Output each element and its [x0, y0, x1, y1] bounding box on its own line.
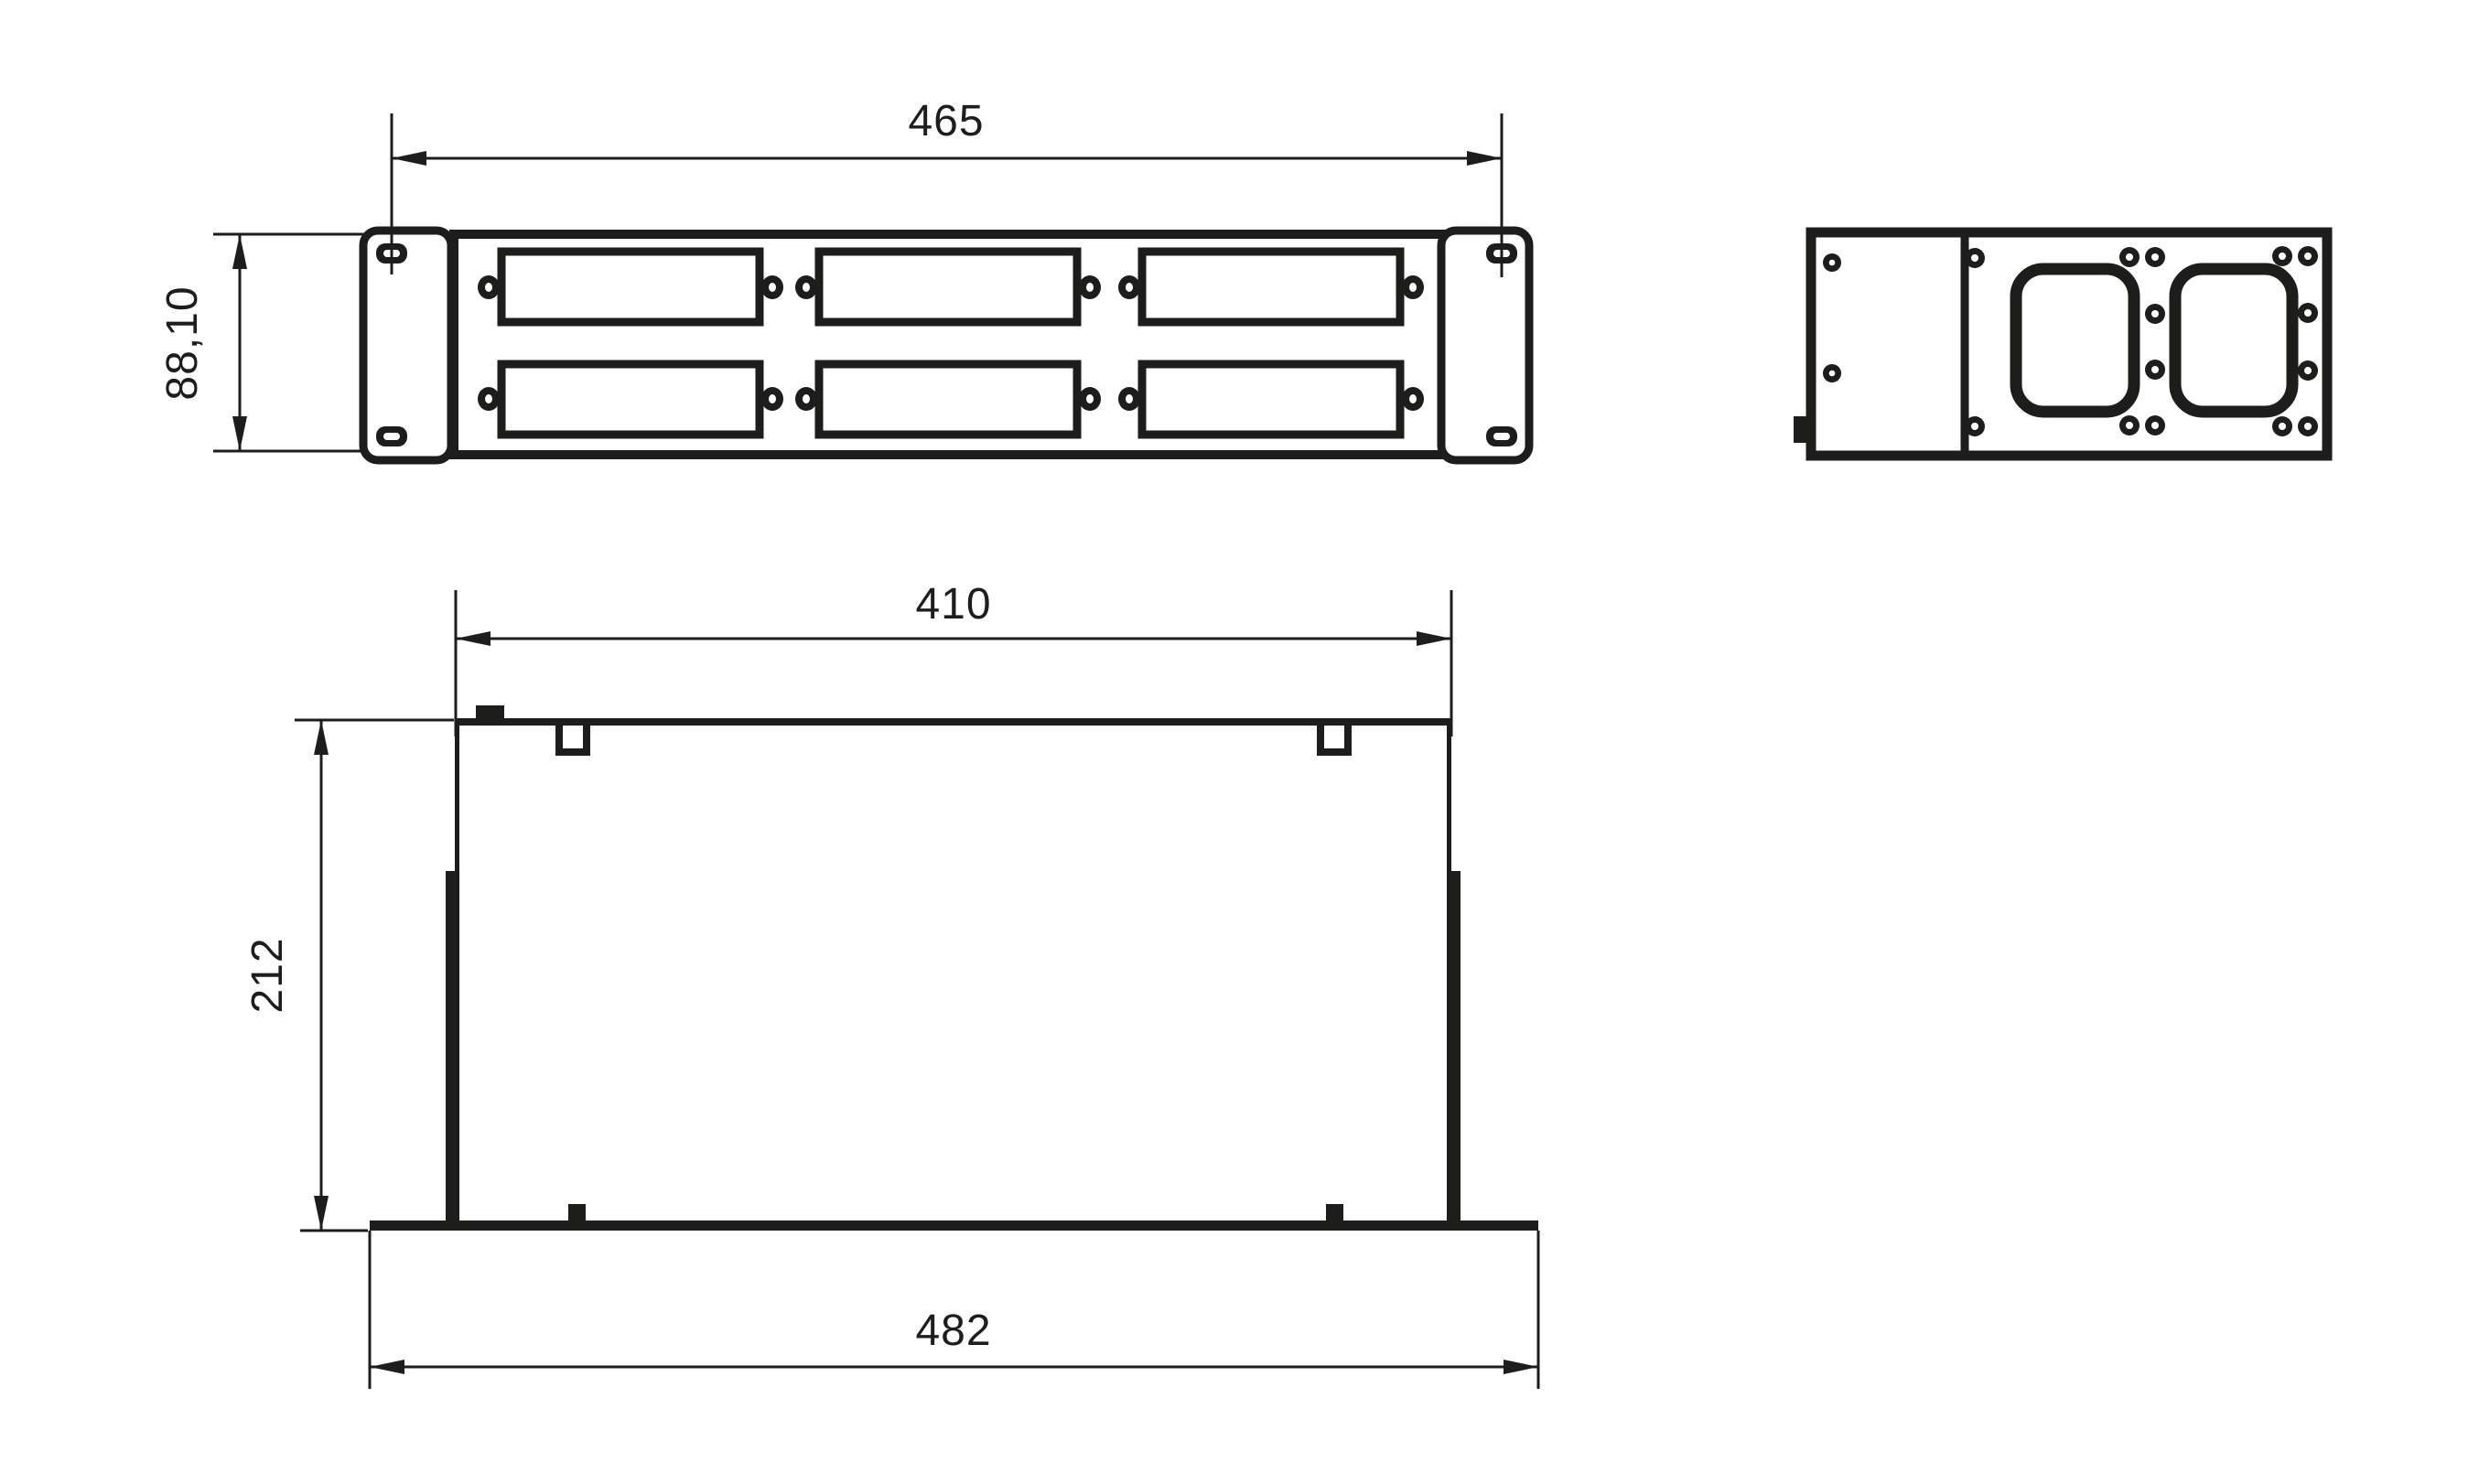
arrowhead-top: [232, 234, 247, 269]
arrowhead-left: [456, 631, 490, 646]
arrowhead-right: [1504, 1360, 1538, 1374]
arrowhead-left: [392, 151, 426, 166]
side-view: [1794, 232, 2327, 456]
cutout-row1-col3: [1142, 252, 1400, 322]
drawing-svg: 465 88,10: [0, 0, 2490, 1484]
cutout-row2-col3: [1142, 364, 1400, 435]
dim-label-212: 212: [243, 937, 292, 1013]
plan-flange-tabs: [568, 1204, 1343, 1221]
arrowhead-right: [1417, 631, 1451, 646]
left-wall-thin: [455, 726, 459, 871]
side-cutout-2: [2175, 269, 2292, 412]
right-wall-thin: [1447, 726, 1451, 871]
left-rack-ear: [363, 231, 451, 460]
arrowhead-bottom: [232, 416, 247, 451]
dim-label-88-10: 88,10: [158, 285, 207, 400]
dimension-88-10: 88,10: [158, 234, 366, 451]
right-wall-thick: [1447, 871, 1461, 1222]
dimension-212: 212: [243, 720, 454, 1231]
plan-view: 410 212 482: [243, 580, 1538, 1389]
arrowhead-top: [314, 720, 329, 755]
technical-drawing: 465 88,10: [0, 0, 2490, 1484]
plan-side-walls: [446, 726, 1461, 1222]
cutout-row2-col1: [501, 364, 760, 435]
plan-top-tab: [476, 705, 504, 718]
dim-label-465: 465: [908, 97, 984, 145]
plan-bottom-flange: [370, 1221, 1538, 1231]
side-cutout-1: [2016, 269, 2134, 412]
plan-clip-notches: [555, 726, 1352, 756]
dimension-410: 410: [456, 580, 1451, 737]
arrowhead-right: [1467, 151, 1502, 166]
arrowhead-left: [370, 1360, 404, 1374]
cutout-row2-col2: [819, 364, 1077, 435]
left-wall-thick: [446, 871, 459, 1222]
dim-label-410: 410: [915, 580, 991, 629]
front-view: 465 88,10: [158, 97, 1529, 460]
cutout-row1-col1: [501, 252, 760, 322]
plan-top-edge: [456, 718, 1451, 726]
right-rack-ear: [1441, 231, 1529, 460]
arrowhead-bottom: [314, 1196, 329, 1231]
cutout-row1-col2: [819, 252, 1077, 322]
dim-label-482: 482: [915, 1307, 991, 1355]
dimension-482: 482: [370, 1231, 1538, 1389]
